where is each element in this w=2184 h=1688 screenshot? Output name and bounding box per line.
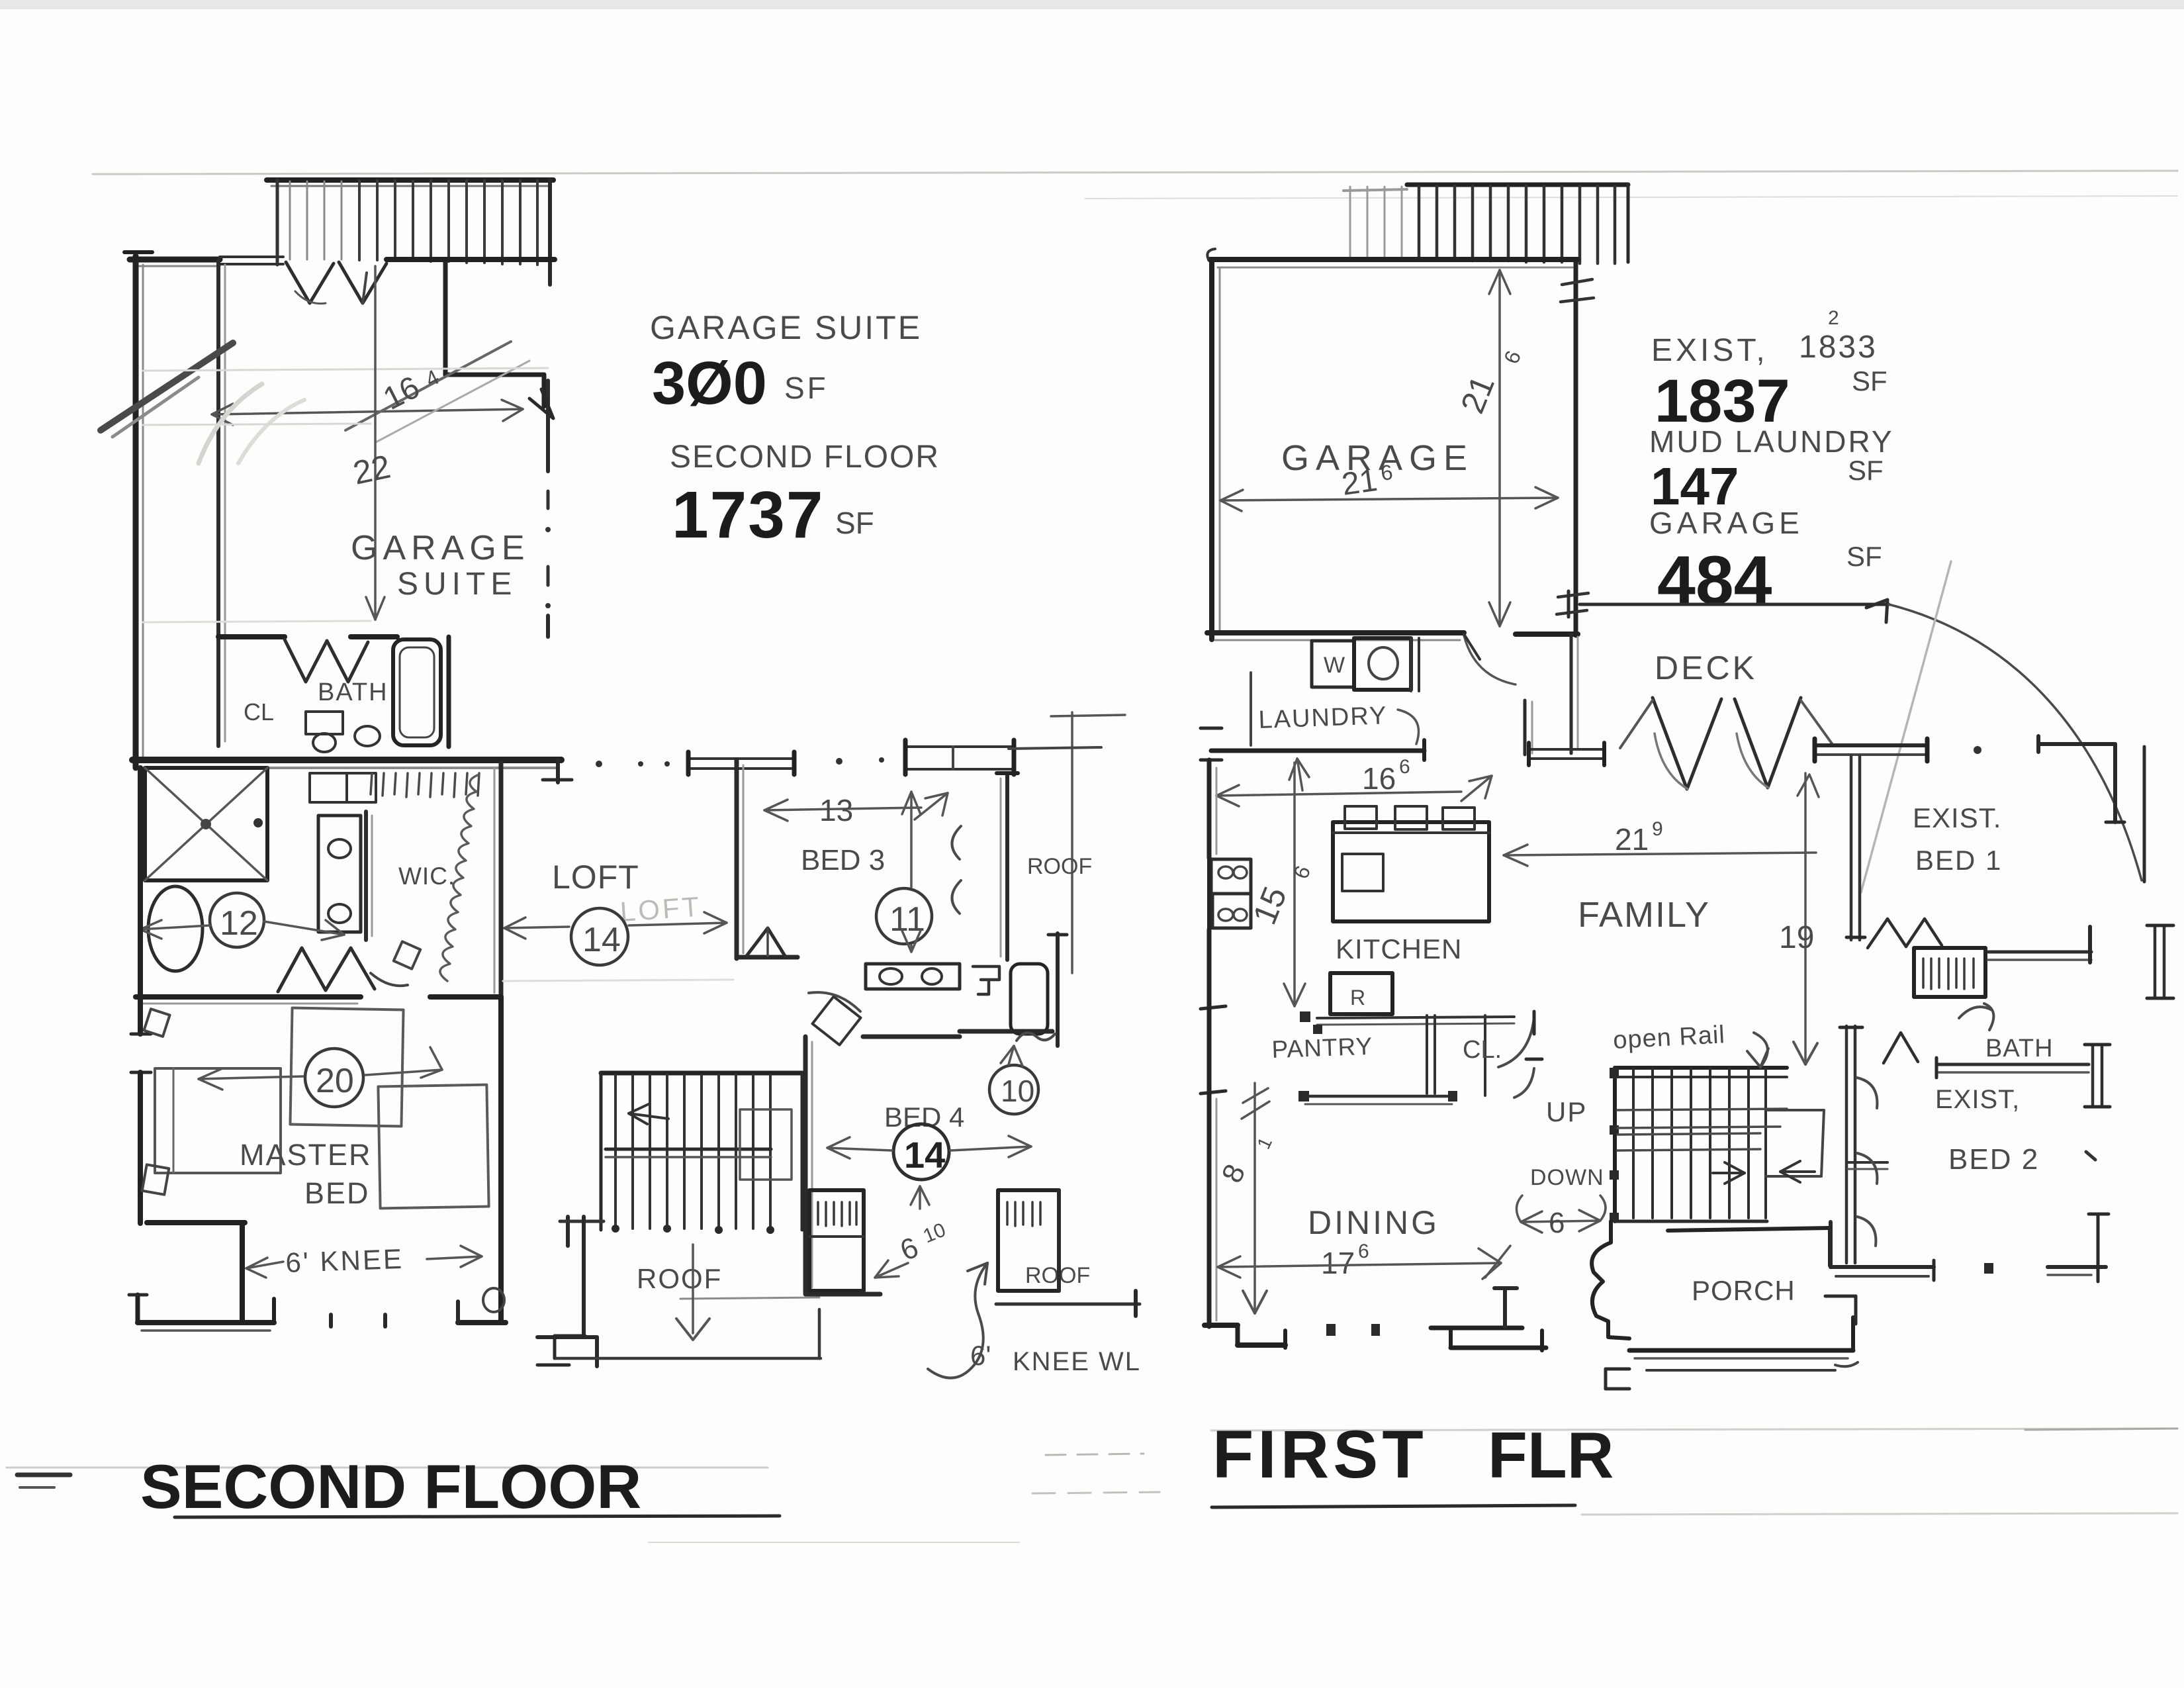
svg-text:R: R (1350, 986, 1365, 1009)
svg-text:KNEE WL: KNEE WL (1013, 1347, 1141, 1376)
svg-text:MASTER: MASTER (240, 1138, 372, 1172)
svg-text:BATH: BATH (318, 679, 388, 706)
svg-text:13: 13 (819, 793, 853, 827)
svg-text:17: 17 (1321, 1246, 1355, 1280)
svg-text:12: 12 (220, 904, 258, 943)
svg-text:GARAGE: GARAGE (1281, 438, 1474, 478)
svg-text:SECOND FLOOR: SECOND FLOOR (140, 1452, 641, 1521)
svg-text:22: 22 (350, 447, 394, 491)
svg-text:6' KNEE: 6' KNEE (285, 1243, 404, 1278)
svg-text:FAMILY: FAMILY (1578, 895, 1710, 935)
svg-text:14: 14 (904, 1134, 945, 1176)
svg-text:BATH: BATH (1985, 1035, 2054, 1062)
svg-text:open Rail: open Rail (1612, 1021, 1726, 1055)
svg-text:SF: SF (784, 371, 829, 405)
svg-text:SUITE: SUITE (397, 567, 517, 602)
svg-text:6: 6 (1549, 1207, 1565, 1239)
svg-text:10: 10 (1001, 1074, 1034, 1108)
svg-text:W: W (1324, 653, 1345, 678)
svg-text:FIRST: FIRST (1212, 1417, 1428, 1492)
svg-text:EXIST,: EXIST, (1935, 1085, 2020, 1114)
svg-text:6: 6 (1358, 1241, 1369, 1262)
svg-text:KITCHEN: KITCHEN (1336, 933, 1462, 964)
svg-text:PANTRY: PANTRY (1271, 1033, 1373, 1063)
svg-text:CL: CL (244, 698, 274, 726)
svg-text:GARAGE SUITE: GARAGE SUITE (650, 309, 922, 346)
svg-text:LOFT: LOFT (619, 890, 702, 927)
svg-text:BED: BED (304, 1176, 370, 1210)
svg-text:BED 3: BED 3 (801, 844, 885, 876)
svg-text:SF: SF (835, 506, 874, 540)
svg-text:9: 9 (1652, 818, 1663, 840)
svg-text:SF: SF (1852, 365, 1888, 397)
svg-text:WIC.: WIC. (398, 863, 455, 890)
svg-text:GARAGE: GARAGE (351, 529, 530, 567)
svg-text:ROOF: ROOF (637, 1263, 722, 1294)
svg-text:SF: SF (1848, 455, 1884, 486)
svg-text:GARAGE: GARAGE (1649, 506, 1803, 540)
svg-text:19: 19 (1779, 920, 1814, 955)
svg-text:BED 4: BED 4 (884, 1102, 964, 1133)
svg-text:6: 6 (1399, 756, 1410, 778)
svg-text:EXIST,: EXIST, (1651, 333, 1768, 368)
svg-text:14: 14 (582, 921, 621, 959)
svg-text:BED 1: BED 1 (1915, 845, 2002, 876)
svg-text:484: 484 (1657, 542, 1772, 619)
svg-text:21: 21 (1615, 822, 1649, 857)
svg-text:20: 20 (316, 1062, 354, 1100)
svg-text:DECK: DECK (1655, 649, 1757, 686)
svg-text:LAUNDRY: LAUNDRY (1258, 702, 1388, 734)
svg-text:EXIST.: EXIST. (1913, 802, 2001, 833)
svg-text:CL.: CL. (1463, 1036, 1502, 1064)
svg-text:UP: UP (1546, 1096, 1587, 1127)
svg-text:ROOF: ROOF (1027, 854, 1092, 879)
svg-text:SF: SF (1846, 541, 1882, 572)
svg-text:PORCH: PORCH (1692, 1275, 1796, 1306)
svg-text:DOWN: DOWN (1530, 1165, 1604, 1190)
svg-text:1833: 1833 (1799, 330, 1878, 365)
svg-text:DINING: DINING (1308, 1204, 1439, 1241)
svg-text:21: 21 (1340, 463, 1379, 502)
svg-text:16: 16 (1362, 761, 1396, 796)
svg-text:6': 6' (970, 1340, 991, 1371)
svg-text:2: 2 (1828, 307, 1839, 329)
svg-text:FLR: FLR (1488, 1419, 1614, 1491)
svg-text:1737: 1737 (672, 478, 824, 552)
svg-text:3Ø0: 3Ø0 (652, 350, 767, 417)
svg-text:MUD LAUNDRY: MUD LAUNDRY (1649, 424, 1894, 459)
svg-text:SECOND FLOOR: SECOND FLOOR (670, 440, 940, 475)
svg-text:LOFT: LOFT (552, 859, 639, 896)
svg-text:BED 2: BED 2 (1948, 1143, 2039, 1176)
